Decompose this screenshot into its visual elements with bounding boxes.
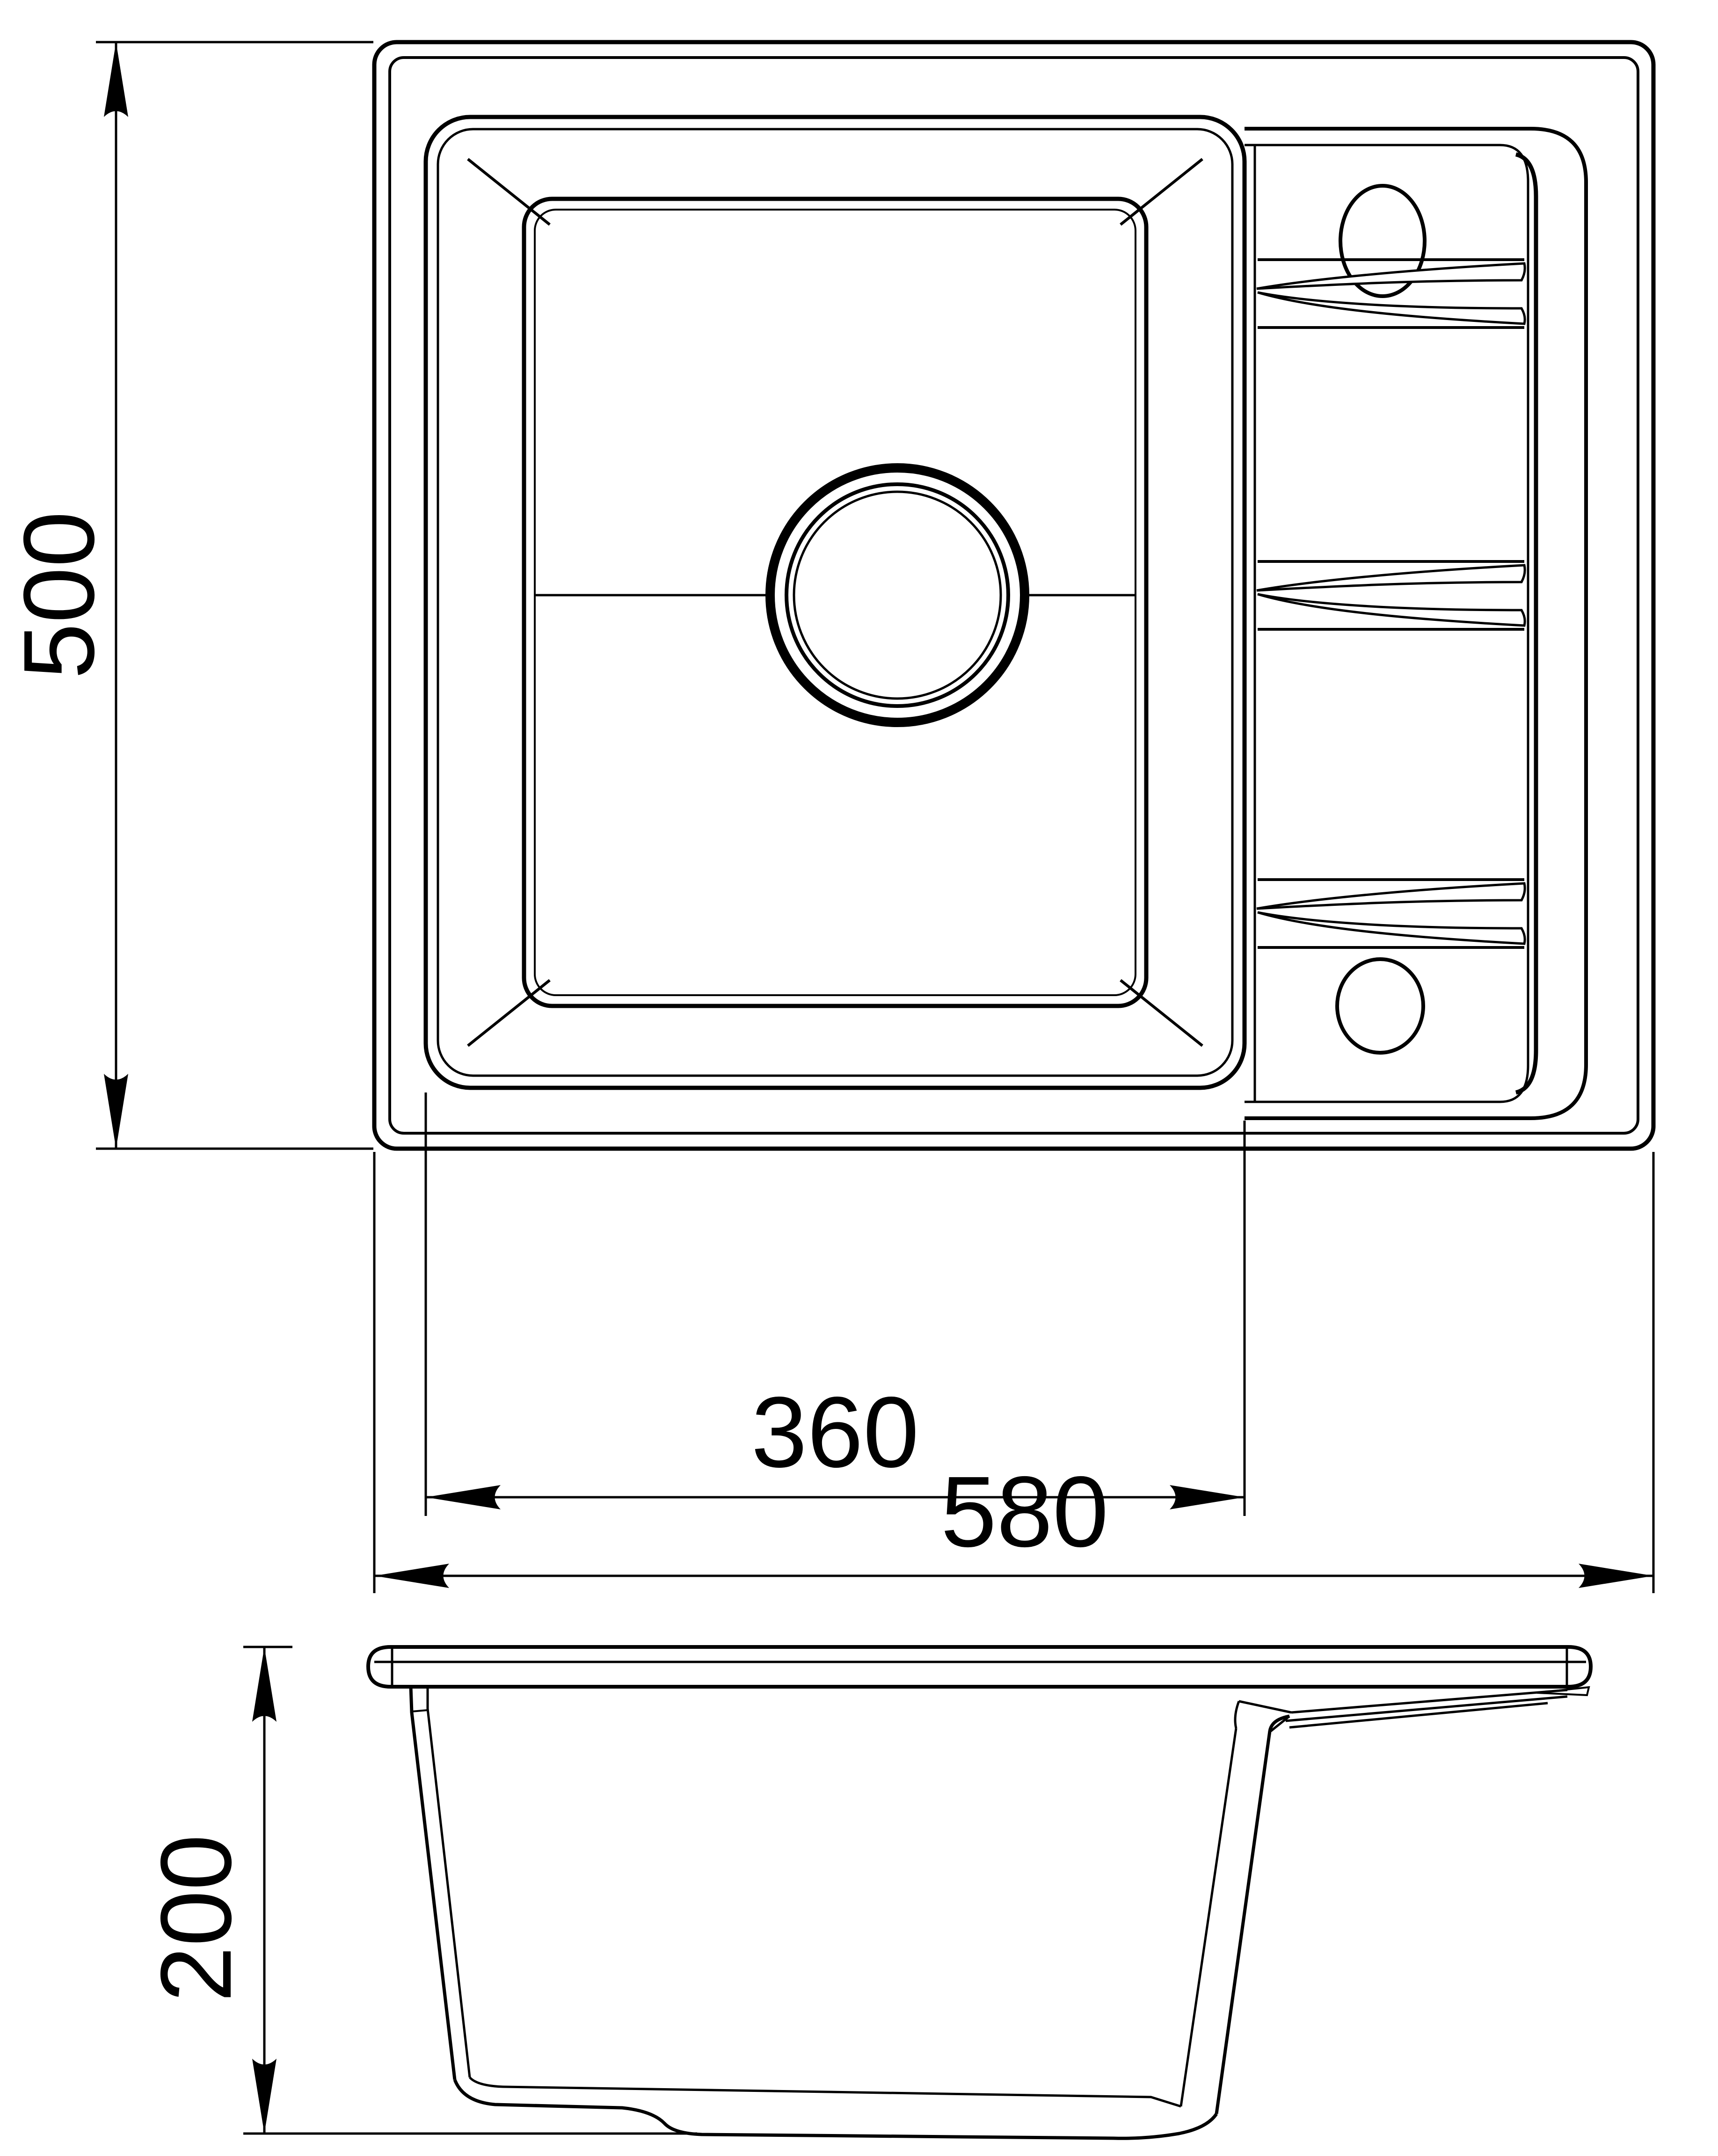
dimension-500: 500 (2, 42, 373, 1149)
arrowhead-up-icon (104, 42, 128, 117)
arrowhead-left-icon (426, 1485, 501, 1509)
faucet-hole-bottom (1337, 959, 1423, 1053)
groove-group-2 (1257, 561, 1525, 629)
drain-icon (770, 468, 1025, 722)
dimension-360: 360 (426, 1093, 1245, 1516)
dim-label-500: 500 (2, 511, 115, 679)
arrowhead-down-icon (104, 1074, 128, 1149)
dim-label-200: 200 (139, 1835, 252, 2003)
groove-group-3 (1257, 880, 1525, 947)
dim-label-580: 580 (941, 1455, 1109, 1568)
drawing-canvas: 500 360 580 (0, 0, 1718, 2156)
arrowhead-right-icon (1170, 1485, 1245, 1509)
counter-slab (368, 1647, 1591, 1687)
arrowhead-right-icon (1579, 1564, 1653, 1588)
arrowhead-down-icon (252, 2059, 277, 2134)
dimension-580: 580 (374, 1152, 1653, 1593)
arrowhead-left-icon (374, 1564, 449, 1588)
arrowhead-up-icon (252, 1647, 277, 1722)
drainboard-section (1235, 1687, 1589, 1731)
bowl-section (411, 1687, 1289, 2138)
dimension-200: 200 (139, 1647, 697, 2134)
top-view (374, 42, 1653, 1149)
dim-label-360: 360 (751, 1376, 919, 1488)
sink-technical-drawing: 500 360 580 (0, 0, 1718, 2156)
side-view (368, 1647, 1591, 2138)
drainboard-grooves (1257, 260, 1525, 947)
